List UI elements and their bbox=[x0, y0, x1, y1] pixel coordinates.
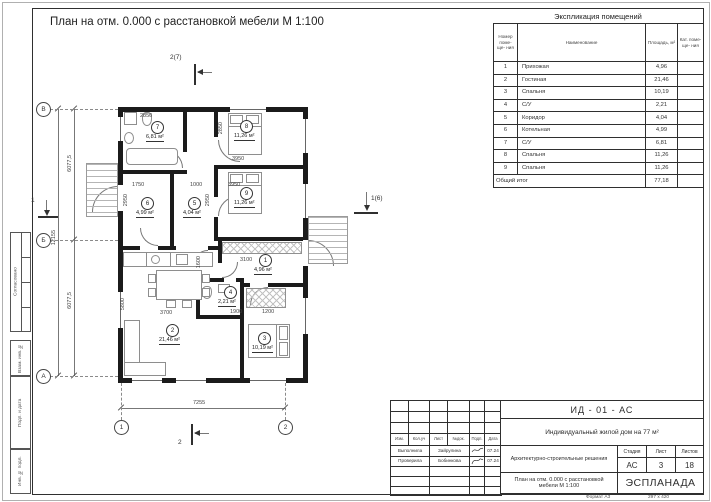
wall-interior bbox=[196, 315, 244, 319]
pillow-symbol bbox=[246, 174, 259, 183]
section-marker-bar bbox=[194, 64, 196, 85]
grid-bubble: В bbox=[36, 102, 51, 117]
cell-area: 4,04 bbox=[646, 112, 678, 125]
total-area: 77,18 bbox=[646, 175, 678, 188]
room-number-badge: 8 bbox=[240, 120, 253, 133]
table-row: 1Прихожая4,96 bbox=[494, 62, 704, 75]
margin-line bbox=[22, 282, 31, 283]
cell-cat bbox=[678, 62, 704, 75]
dimension-label: 1600 bbox=[197, 256, 203, 268]
sheet-number: 3 bbox=[646, 457, 676, 473]
dimension-label: 2850 bbox=[140, 114, 152, 120]
wall-outer-left bbox=[118, 107, 123, 383]
margin-label: Подп. и дата bbox=[11, 377, 30, 448]
cell-cat bbox=[678, 112, 704, 125]
dimension-label: 5800 bbox=[121, 298, 127, 310]
dimension-label: 1200 bbox=[262, 310, 274, 316]
washer-symbol bbox=[124, 112, 137, 125]
total-label: Общий итог bbox=[494, 175, 646, 188]
wall-interior bbox=[214, 165, 308, 169]
col-dok: №док. bbox=[448, 434, 470, 446]
room-area-label: 11,26 м² bbox=[234, 201, 255, 208]
cell-area: 4,99 bbox=[646, 124, 678, 137]
format-size: 297 x 420 bbox=[648, 495, 669, 500]
sig-name: Зайрулина bbox=[430, 446, 470, 457]
wall-interior bbox=[183, 107, 187, 152]
object-name: Индивидуальный жилой дом на 77 м² bbox=[500, 418, 704, 446]
change-row bbox=[391, 412, 502, 423]
wall-interior bbox=[118, 246, 140, 250]
table-row: 8Спальня11,26 bbox=[494, 150, 704, 163]
wall-interior bbox=[240, 287, 244, 378]
cell-cat bbox=[678, 87, 704, 100]
dimension-label: 3100 bbox=[240, 258, 252, 264]
drawing-title: План на отм. 0.000 с расстановкой мебели… bbox=[50, 16, 324, 28]
window bbox=[118, 117, 123, 141]
cell-name: Спальня bbox=[518, 162, 646, 175]
signature-row bbox=[391, 467, 502, 477]
explication-title: Экспликация помещений bbox=[493, 12, 703, 21]
signature-row bbox=[391, 487, 502, 496]
cell-area: 2,21 bbox=[646, 99, 678, 112]
margin-box-agreed: Согласовано bbox=[10, 232, 31, 332]
sofa-symbol bbox=[124, 362, 166, 376]
grid-line bbox=[121, 383, 122, 420]
drawing-sheet: План на отм. 0.000 с расстановкой мебели… bbox=[0, 0, 711, 502]
section-marker-label: 1 bbox=[31, 198, 35, 205]
sofa-symbol bbox=[124, 320, 140, 366]
pillow-symbol bbox=[279, 342, 288, 356]
room-number-badge: 5 bbox=[188, 197, 201, 210]
grid-bubble: Б bbox=[36, 233, 51, 248]
cell-num: 8 bbox=[494, 150, 518, 163]
cell-num: 2 bbox=[494, 74, 518, 87]
cell-name: С/У bbox=[518, 137, 646, 150]
chair-symbol bbox=[166, 300, 176, 308]
total-cat bbox=[678, 175, 704, 188]
col-podp: Подп. bbox=[470, 434, 485, 446]
dimension-label: 3950 bbox=[232, 157, 244, 163]
wall-interior bbox=[158, 246, 176, 250]
sig-date: 07.24 bbox=[485, 456, 502, 467]
room-area-label: 6,81 м² bbox=[146, 135, 164, 142]
dimension-line bbox=[74, 109, 75, 376]
chair-symbol bbox=[202, 288, 210, 297]
kitchen-sink-symbol bbox=[151, 255, 160, 264]
chair-symbol bbox=[182, 300, 192, 308]
bed-line bbox=[276, 324, 277, 358]
grid-bubble: 1 bbox=[114, 420, 129, 435]
col-list: Лист bbox=[430, 434, 448, 446]
sheets-total: 18 bbox=[675, 457, 704, 473]
room-number-badge: 4 bbox=[224, 286, 237, 299]
explication-header-row: Номер поме- ще- ния Наименование Площадь… bbox=[494, 24, 704, 62]
pillow-symbol bbox=[279, 326, 288, 340]
sig-role: Проверила bbox=[391, 456, 430, 467]
room-area-label: 21,46 м² bbox=[159, 338, 180, 345]
dimension-label: 7255 bbox=[193, 401, 205, 407]
col-header-area: Площадь, м² bbox=[646, 24, 678, 62]
section-marker-bar bbox=[191, 424, 193, 445]
col-header-cat: Кат. поме- ще- ния bbox=[678, 24, 704, 62]
company-logo: ЭСПЛАНАДА bbox=[617, 472, 704, 494]
dimension-label: 6077,5 bbox=[68, 155, 74, 172]
section-arrow bbox=[197, 69, 203, 75]
cell-num: 6 bbox=[494, 124, 518, 137]
cell-cat bbox=[678, 124, 704, 137]
room-number-badge: 9 bbox=[240, 187, 253, 200]
wall-interior bbox=[170, 174, 174, 250]
table-total-row: Общий итог 77,18 bbox=[494, 175, 704, 188]
window bbox=[132, 378, 162, 383]
stove-symbol bbox=[176, 254, 188, 265]
cell-cat bbox=[678, 137, 704, 150]
cell-cat bbox=[678, 74, 704, 87]
window bbox=[303, 119, 308, 153]
table-row: 5Коридор4,04 bbox=[494, 112, 704, 125]
table-row: 6Котельная4,99 bbox=[494, 124, 704, 137]
section-arrow bbox=[194, 430, 200, 436]
signature-row bbox=[391, 477, 502, 487]
wall-interior bbox=[218, 237, 308, 241]
cell-num: 5 bbox=[494, 112, 518, 125]
doc-code: ИД - 01 - АС bbox=[500, 400, 704, 419]
kitchen-divider bbox=[170, 252, 171, 267]
margin-line bbox=[22, 307, 31, 308]
dimension-label: 2850 bbox=[219, 122, 225, 134]
room-number-badge: 2 bbox=[166, 324, 179, 337]
margin-label: Инв. № подл. bbox=[11, 450, 30, 493]
signature-squiggle bbox=[470, 456, 485, 467]
cell-area: 21,46 bbox=[646, 74, 678, 87]
window bbox=[303, 298, 308, 334]
signature-squiggle bbox=[470, 446, 485, 457]
margin-line bbox=[22, 257, 31, 258]
margin-box-podp: Подп. и дата bbox=[10, 376, 31, 449]
cell-cat bbox=[678, 99, 704, 112]
dimension-label: 3950 bbox=[228, 183, 240, 189]
dimension-line bbox=[58, 109, 59, 376]
dimension-label: 3700 bbox=[160, 311, 172, 317]
table-row: 4С/У2,21 bbox=[494, 99, 704, 112]
cell-cat bbox=[678, 162, 704, 175]
signature-header-row: Изм. Кол.уч Лист №док. Подп. Дата bbox=[391, 434, 502, 446]
porch-steps bbox=[86, 163, 118, 217]
room-area-label: 4,99 м² bbox=[136, 211, 154, 218]
doc-type: Архитектурно-строительные решения bbox=[500, 445, 618, 473]
margin-label: Согласовано bbox=[11, 233, 21, 331]
section-marker-label: 1(6) bbox=[371, 196, 383, 203]
dimension-line bbox=[121, 408, 285, 409]
room-number-badge: 1 bbox=[259, 254, 272, 267]
signature-row: Проверила Бобинкова 07.24 bbox=[391, 456, 502, 467]
drawing-name-cell: План на отм. 0.000 с расстановкой мебели… bbox=[500, 472, 618, 494]
room-number-badge: 3 bbox=[258, 332, 271, 345]
table-row: 7С/У6,81 bbox=[494, 137, 704, 150]
cell-name: Прихожая bbox=[518, 62, 646, 75]
cell-area: 11,26 bbox=[646, 162, 678, 175]
signature-row: Выполнила Зайрулина 07.24 bbox=[391, 446, 502, 457]
grid-bubble: 2 bbox=[278, 420, 293, 435]
wall-interior bbox=[268, 283, 308, 287]
sig-role: Выполнила bbox=[391, 446, 430, 457]
room-number-badge: 6 bbox=[141, 197, 154, 210]
change-row bbox=[391, 423, 502, 434]
cell-area: 4,96 bbox=[646, 62, 678, 75]
dimension-label: 6077,5 bbox=[68, 292, 74, 309]
dimension-label: 2950 bbox=[206, 194, 212, 206]
section-marker-line bbox=[366, 192, 367, 206]
wall-interior bbox=[240, 278, 244, 288]
sig-name: Бобинкова bbox=[430, 456, 470, 467]
cell-name: Котельная bbox=[518, 124, 646, 137]
format-label: Формат А3 bbox=[586, 495, 610, 500]
dimension-label: 1900 bbox=[230, 310, 242, 316]
cell-cat bbox=[678, 150, 704, 163]
cell-name: Гостиная bbox=[518, 74, 646, 87]
cell-name: Спальня bbox=[518, 150, 646, 163]
section-marker-bar bbox=[38, 216, 58, 218]
window bbox=[176, 378, 206, 383]
grid-line bbox=[50, 240, 118, 241]
table-row: 9Спальня11,26 bbox=[494, 162, 704, 175]
cell-area: 6,81 bbox=[646, 137, 678, 150]
table-row: 2Гостиная21,46 bbox=[494, 74, 704, 87]
cell-area: 11,26 bbox=[646, 150, 678, 163]
dimension-label: 1750 bbox=[132, 183, 144, 189]
change-row bbox=[391, 401, 502, 412]
wall-interior bbox=[208, 246, 218, 250]
col-header-name: Наименование bbox=[518, 24, 646, 62]
dimension-label: 2950 bbox=[124, 194, 130, 206]
room-area-label: 4,04 м² bbox=[183, 211, 201, 218]
wall-interior bbox=[118, 170, 187, 174]
cell-num: 3 bbox=[494, 87, 518, 100]
margin-box-vzam: Взам. инв. № bbox=[10, 340, 31, 376]
bathtub-symbol bbox=[126, 148, 178, 165]
room-area-label: 2,21 м² bbox=[218, 300, 236, 307]
grid-line bbox=[285, 383, 286, 420]
section-arrow bbox=[364, 205, 370, 211]
frame-top bbox=[32, 8, 704, 9]
grid-line bbox=[50, 109, 118, 110]
margin-label: Взам. инв. № bbox=[11, 341, 30, 375]
window bbox=[230, 107, 266, 112]
cell-name: Спальня bbox=[518, 87, 646, 100]
room-area-label: 11,26 м² bbox=[234, 134, 255, 141]
wall-interior bbox=[214, 169, 218, 197]
wardrobe-symbol bbox=[246, 288, 286, 308]
room-area-label: 10,19 м² bbox=[252, 346, 273, 353]
col-data: Дата bbox=[485, 434, 502, 446]
col-izm: Изм. bbox=[391, 434, 409, 446]
cell-num: 4 bbox=[494, 99, 518, 112]
titleblock-signature-table: Изм. Кол.уч Лист №док. Подп. Дата Выполн… bbox=[390, 400, 502, 496]
cell-num: 9 bbox=[494, 162, 518, 175]
col-header-num: Номер поме- ще- ния bbox=[494, 24, 518, 62]
dimension-label: 1000 bbox=[190, 183, 202, 189]
grid-line bbox=[50, 376, 118, 377]
table-row: 3Спальня10,19 bbox=[494, 87, 704, 100]
cell-name: Коридор bbox=[518, 112, 646, 125]
section-marker-label: 2 bbox=[178, 440, 182, 447]
section-marker-label: 2(7) bbox=[170, 55, 182, 62]
room-area-label: 4,96 м² bbox=[254, 268, 272, 275]
window bbox=[303, 184, 308, 218]
chair-symbol bbox=[148, 288, 156, 297]
frame-left bbox=[32, 8, 33, 495]
grid-bubble: А bbox=[36, 369, 51, 384]
col-koluch: Кол.уч bbox=[409, 434, 430, 446]
dimension-label: 12155 bbox=[52, 230, 58, 245]
cell-area: 10,19 bbox=[646, 87, 678, 100]
terrace-steps bbox=[308, 216, 348, 264]
kitchen-divider bbox=[146, 252, 147, 267]
wardrobe-symbol bbox=[222, 242, 302, 254]
section-marker-bar bbox=[354, 212, 378, 214]
cell-num: 1 bbox=[494, 62, 518, 75]
cell-num: 7 bbox=[494, 137, 518, 150]
window bbox=[250, 378, 286, 383]
sig-date: 07.24 bbox=[485, 446, 502, 457]
margin-box-inv: Инв. № подл. bbox=[10, 449, 31, 494]
explication-table: Номер поме- ще- ния Наименование Площадь… bbox=[493, 23, 704, 188]
sink-symbol bbox=[124, 132, 134, 144]
dining-table-symbol bbox=[156, 270, 202, 300]
chair-symbol bbox=[148, 274, 156, 283]
stage-value: АС bbox=[617, 457, 647, 473]
chair-symbol bbox=[202, 274, 210, 283]
cell-name: С/У bbox=[518, 99, 646, 112]
room-number-badge: 7 bbox=[151, 121, 164, 134]
